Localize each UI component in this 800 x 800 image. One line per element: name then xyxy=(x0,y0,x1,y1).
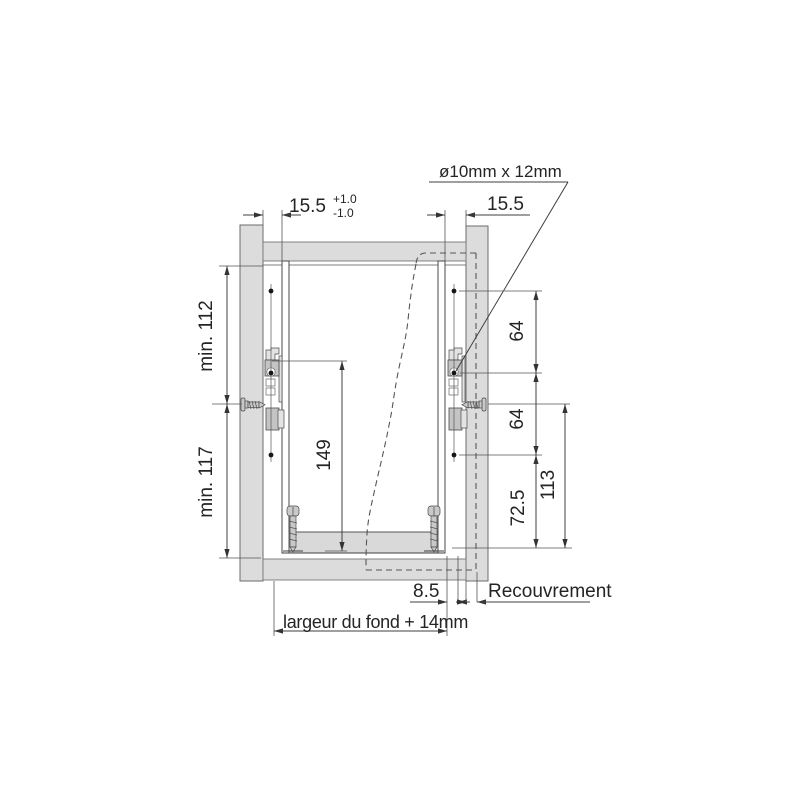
drawer-bottom-panel xyxy=(289,532,438,553)
dim-113-label: 113 xyxy=(538,470,559,500)
callout-label: ø10mm x 12mm xyxy=(439,162,562,181)
mounting-hole-dot xyxy=(269,289,274,294)
dim-64-middle-label: 64 xyxy=(507,408,528,430)
break-line-wavy xyxy=(366,264,416,570)
mounting-hole-dot xyxy=(452,453,457,458)
dim-72-5-label: 72.5 xyxy=(508,490,529,527)
slide-lower-block xyxy=(449,408,462,430)
dim-top-left-label: 15.5 xyxy=(289,196,326,217)
dim-8-5-label: 8.5 xyxy=(413,581,439,602)
overlay-label: Recouvrement xyxy=(488,581,612,602)
slide-window-2 xyxy=(449,388,458,395)
cabinet-bottom-rail xyxy=(263,559,466,580)
slide-rail-bar xyxy=(462,356,465,402)
slide-hook-profile xyxy=(266,348,279,360)
dim-min-112-label: min. 112 xyxy=(196,300,217,371)
slide-window-1 xyxy=(449,379,458,386)
mounting-hole-dot xyxy=(269,371,274,376)
drawer-slide-installation-diagram: ø10mm x 12mm 15.5 +1.0 -1.0 15.5 min. 11… xyxy=(0,0,800,800)
slide-bracket-tab xyxy=(461,410,467,428)
technical-drawing-page: ø10mm x 12mm 15.5 +1.0 -1.0 15.5 min. 11… xyxy=(0,0,800,800)
cabinet-top-rail xyxy=(263,242,466,261)
slide-window-1 xyxy=(266,379,275,386)
left-slide-rail xyxy=(265,348,284,430)
dim-149-label: 149 xyxy=(314,439,335,471)
right-slide-rail xyxy=(448,348,467,430)
slide-window-2 xyxy=(266,388,275,395)
mounting-hole-dot xyxy=(452,289,457,294)
tolerance-upper-label: +1.0 xyxy=(333,192,357,206)
slide-hook-profile xyxy=(449,348,462,360)
slide-lower-block xyxy=(266,408,279,430)
slide-bracket-tab xyxy=(278,410,284,428)
dim-64-upper-label: 64 xyxy=(507,320,528,342)
mounting-hole-dot xyxy=(269,453,274,458)
bottom-width-label: largeur du fond + 14mm xyxy=(283,612,468,632)
slide-rail-bar xyxy=(279,356,282,402)
dim-top-right-label: 15.5 xyxy=(487,194,524,215)
dim-min-117-label: min. 117 xyxy=(196,446,217,517)
drawer xyxy=(282,261,445,553)
tolerance-lower-label: -1.0 xyxy=(333,206,354,220)
mounting-hole-dot xyxy=(452,371,457,376)
dim-113: 113 xyxy=(488,404,570,548)
cabinet xyxy=(240,225,488,581)
